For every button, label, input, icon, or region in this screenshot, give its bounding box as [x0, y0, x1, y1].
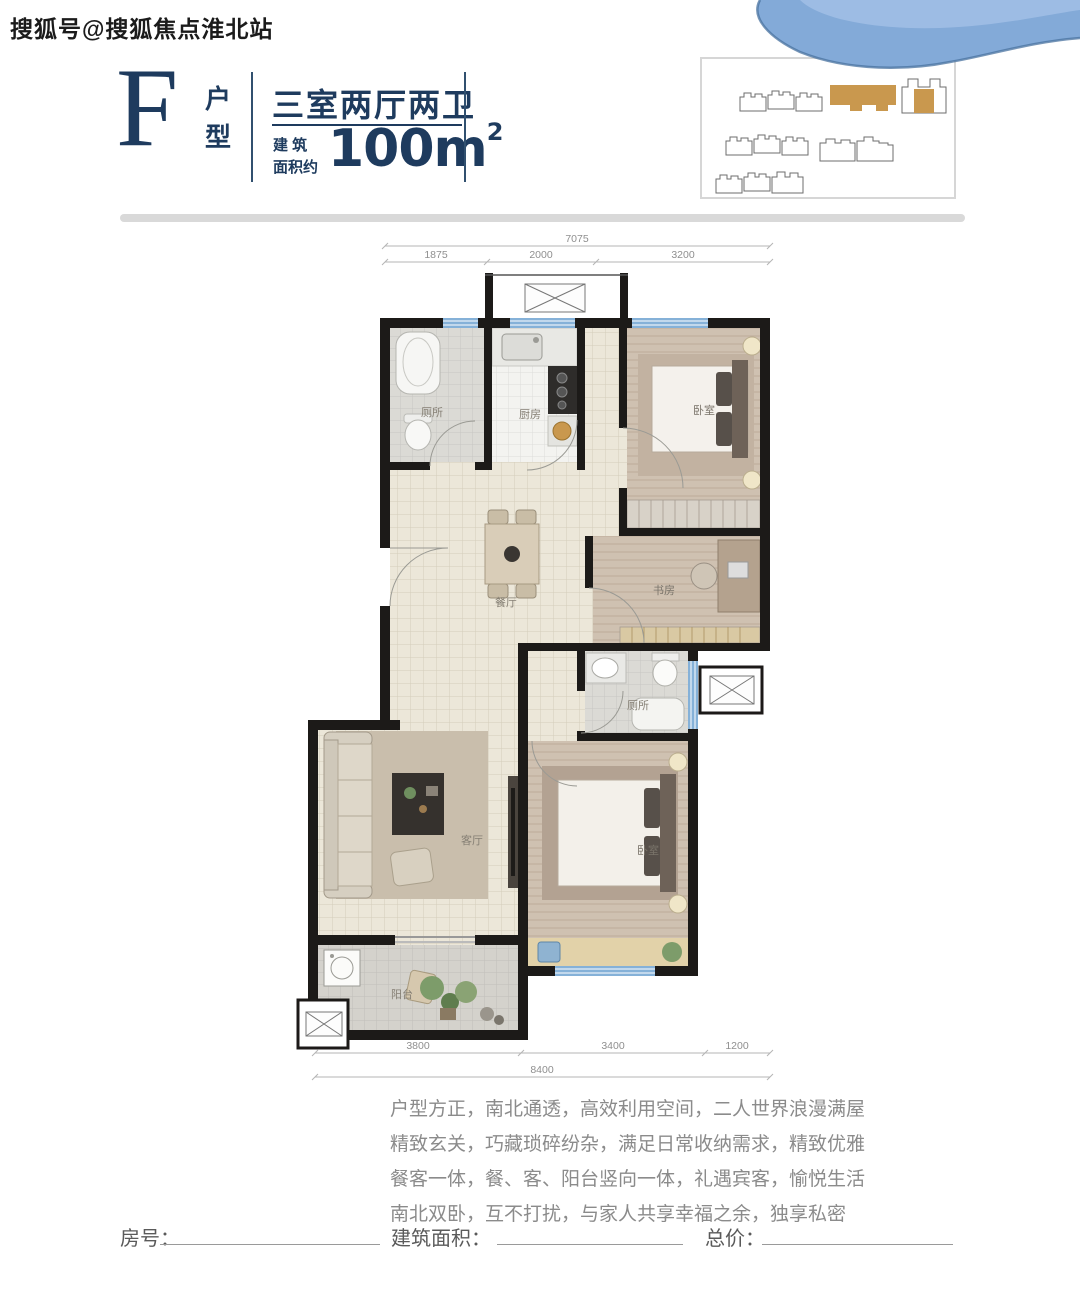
- floorplan-poster-page: { "watermark": "搜狐号@搜狐焦点淮北站", "header": …: [0, 0, 1080, 1292]
- label-bedroom2: 卧室: [637, 843, 659, 857]
- total-price-blank-line: [762, 1244, 953, 1245]
- area-exponent: 2: [487, 118, 503, 146]
- header-divider-left: [251, 72, 253, 182]
- highlighted-buildings: [830, 85, 934, 113]
- room-number-label: 房号：: [120, 1222, 180, 1251]
- label-bathroom2: 厕所: [627, 699, 649, 712]
- watercolor-blob: [740, 0, 1080, 88]
- build-area-label: 建筑面积：: [391, 1222, 491, 1251]
- header-divider-right: [464, 72, 466, 182]
- area-number: 100m: [328, 119, 487, 179]
- unit-type-label: 户 型: [205, 86, 231, 150]
- label-dining: 餐厅: [495, 595, 517, 609]
- dim-bottom-total: 8400: [530, 1064, 554, 1076]
- label-bathroom1: 厕所: [421, 406, 443, 419]
- ac-platform-right: [700, 667, 762, 713]
- build-area-blank-line: [497, 1244, 683, 1245]
- ac-platform-bottom-left: [298, 1000, 348, 1048]
- room-number-blank-line: [160, 1244, 380, 1245]
- description-line-3: 餐客一体，餐、客、阳台竖向一体，礼遇宾客，愉悦生活: [390, 1162, 865, 1197]
- description-line-1: 户型方正，南北通透，高效利用空间，二人世界浪漫满屋: [390, 1092, 865, 1127]
- dim-top-total: 7075: [565, 233, 589, 245]
- ac-platform-top: [493, 277, 620, 318]
- floor-plan: 厕所 厨房 卧室 餐厅 书房 厕所 客厅 卧室 阳台 7075 1875 200…: [280, 228, 800, 1088]
- label-kitchen: 厨房: [519, 408, 541, 421]
- total-price-label: 总价：: [705, 1222, 765, 1251]
- area-prefix-row1: 建 筑: [273, 135, 321, 157]
- dim-bottom-seg2: 3400: [601, 1040, 625, 1052]
- label-study: 书房: [653, 584, 675, 597]
- dim-bottom-seg3: 1200: [725, 1040, 749, 1052]
- description-paragraph: 户型方正，南北通透，高效利用空间，二人世界浪漫满屋 精致玄关，巧藏琐碎纷杂，满足…: [390, 1092, 865, 1232]
- dim-top-seg1: 1875: [424, 249, 448, 261]
- dim-top-seg3: 3200: [671, 249, 695, 261]
- section-divider-bar: [120, 214, 965, 222]
- sohu-watermark: 搜狐号@搜狐焦点淮北站: [10, 10, 273, 44]
- unit-type-label-char2: 型: [205, 124, 231, 150]
- area-prefix: 建 筑 面积约: [273, 135, 321, 179]
- unit-type-letter: F: [116, 52, 178, 164]
- label-balcony: 阳台: [391, 987, 413, 1001]
- dim-top-seg2: 2000: [529, 249, 553, 261]
- area-prefix-row2: 面积约: [273, 157, 321, 179]
- unit-type-label-char1: 户: [205, 86, 231, 112]
- dim-bottom-seg1: 3800: [406, 1040, 430, 1052]
- description-line-2: 精致玄关，巧藏琐碎纷杂，满足日常收纳需求，精致优雅: [390, 1127, 865, 1162]
- label-bedroom1: 卧室: [693, 403, 715, 417]
- area-value: 100m2: [328, 118, 502, 179]
- label-living: 客厅: [461, 833, 483, 847]
